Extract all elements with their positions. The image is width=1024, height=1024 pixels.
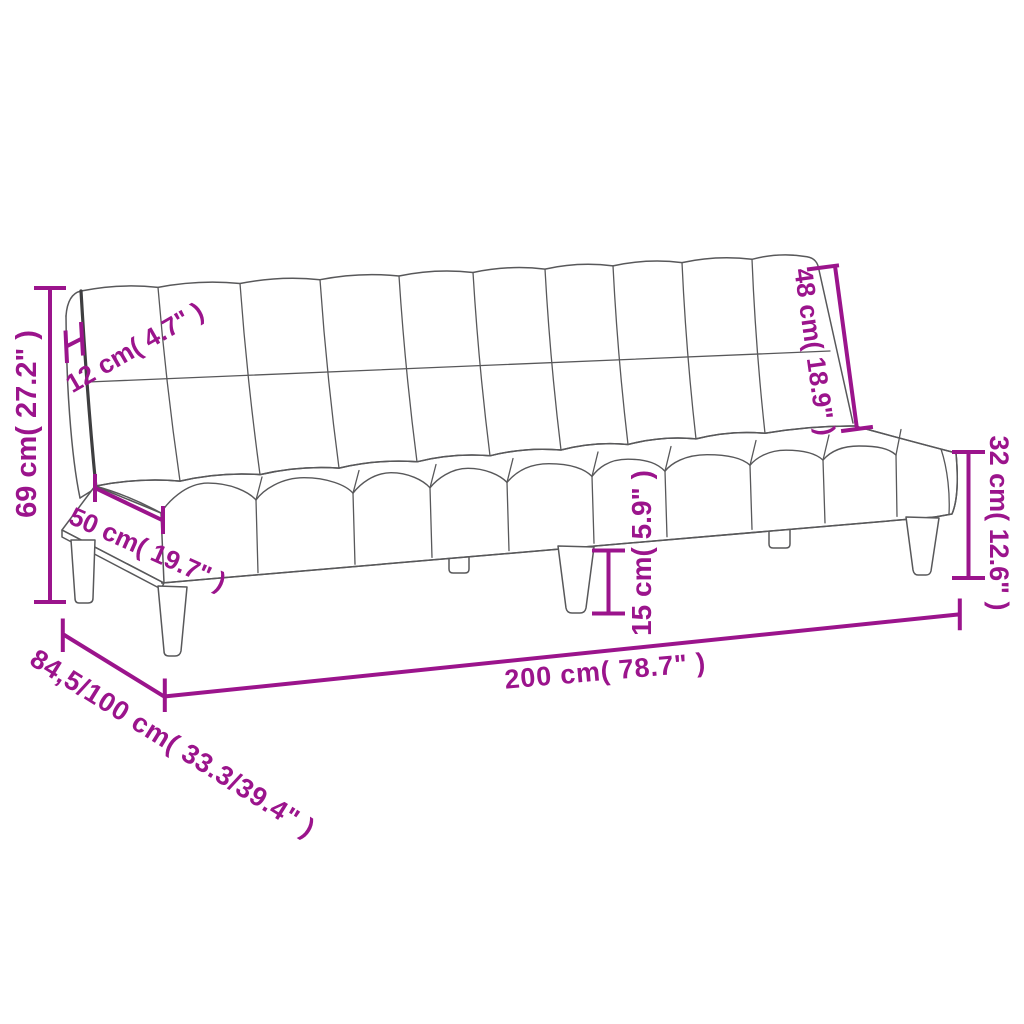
svg-text:69 cm( 27.2" ): 69 cm( 27.2" ) bbox=[11, 330, 43, 518]
svg-text:200 cm( 78.7" ): 200 cm( 78.7" ) bbox=[503, 647, 707, 694]
svg-text:84,5/100 cm( 33.3/39.4" ): 84,5/100 cm( 33.3/39.4" ) bbox=[25, 643, 321, 843]
svg-text:32 cm( 12.6" ): 32 cm( 12.6" ) bbox=[984, 436, 1014, 611]
svg-text:15 cm( 5.9" ): 15 cm( 5.9" ) bbox=[626, 470, 657, 636]
